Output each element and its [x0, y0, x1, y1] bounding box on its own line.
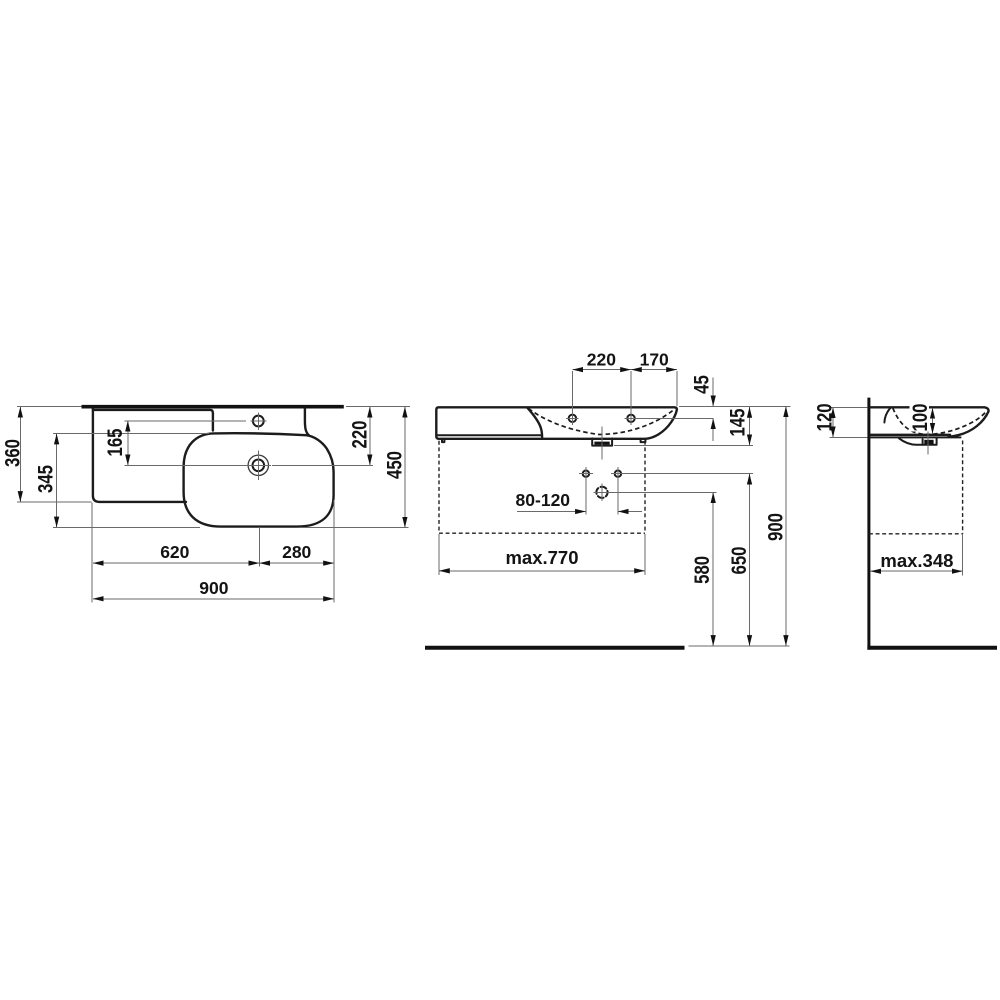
- svg-text:650: 650: [728, 546, 751, 574]
- svg-text:145: 145: [727, 408, 750, 436]
- svg-text:220: 220: [349, 420, 372, 448]
- svg-text:900: 900: [199, 578, 228, 598]
- svg-text:220: 220: [587, 349, 616, 369]
- svg-text:360: 360: [2, 439, 25, 467]
- svg-text:170: 170: [640, 349, 669, 369]
- svg-text:45: 45: [691, 375, 714, 394]
- svg-text:80-120: 80-120: [516, 490, 571, 510]
- svg-text:max.770: max.770: [505, 547, 578, 568]
- svg-text:345: 345: [35, 465, 58, 493]
- svg-text:580: 580: [691, 556, 714, 584]
- svg-text:450: 450: [384, 451, 407, 479]
- svg-text:280: 280: [282, 542, 311, 562]
- svg-text:900: 900: [765, 513, 788, 541]
- svg-text:120: 120: [814, 403, 837, 431]
- svg-text:max.348: max.348: [880, 550, 953, 571]
- svg-text:100: 100: [909, 403, 932, 431]
- svg-text:620: 620: [160, 542, 189, 562]
- svg-text:165: 165: [104, 428, 127, 456]
